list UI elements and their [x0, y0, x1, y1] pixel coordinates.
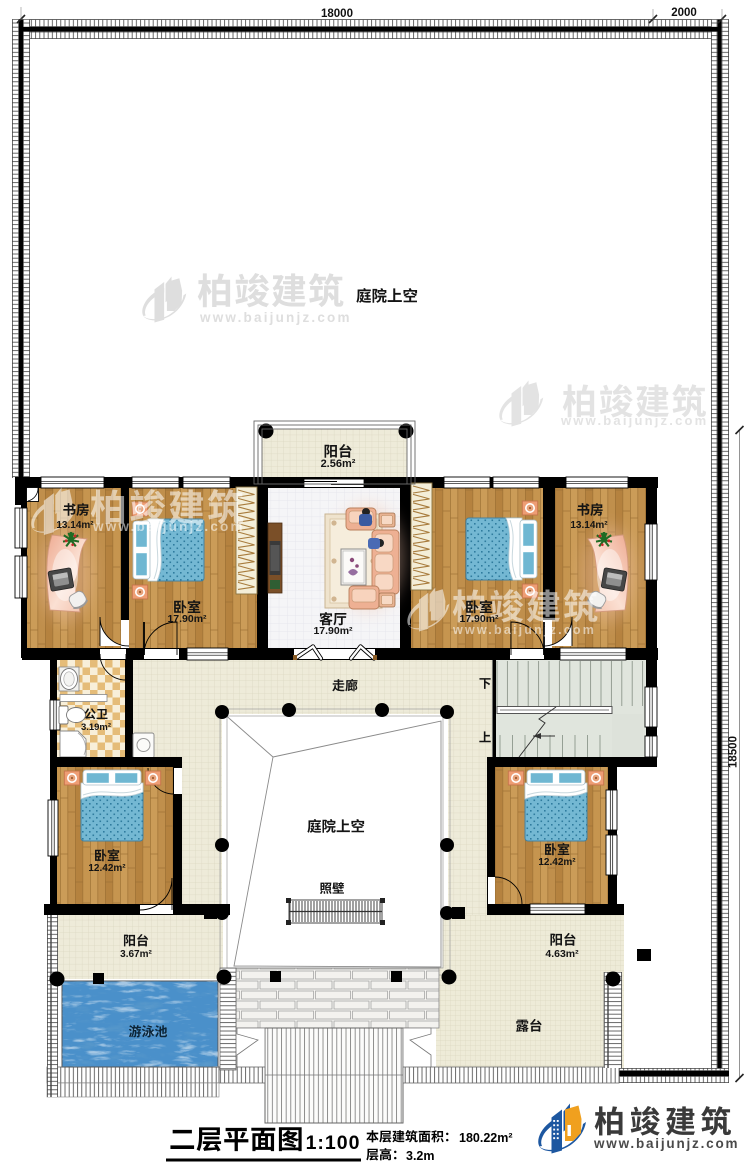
- svg-text:17.90m²: 17.90m²: [459, 613, 499, 625]
- svg-text:18500: 18500: [728, 736, 740, 768]
- svg-text:17.90m²: 17.90m²: [313, 625, 353, 637]
- svg-text:12.42m²: 12.42m²: [88, 863, 126, 874]
- svg-text:180.22m²: 180.22m²: [459, 1131, 513, 1145]
- svg-text:1:100: 1:100: [306, 1132, 361, 1154]
- svg-text:www.baijunjz.com: www.baijunjz.com: [560, 413, 708, 428]
- svg-text:17.90m²: 17.90m²: [167, 613, 207, 625]
- svg-text:13.14m²: 13.14m²: [56, 520, 94, 531]
- svg-text:4.63m²: 4.63m²: [545, 948, 579, 960]
- svg-text:www.baijunjz.com: www.baijunjz.com: [593, 1136, 739, 1151]
- svg-text:2.56m²: 2.56m²: [321, 458, 356, 470]
- svg-text:2000: 2000: [671, 7, 697, 19]
- svg-text:3.2m: 3.2m: [406, 1149, 435, 1163]
- svg-text:13.14m²: 13.14m²: [570, 520, 608, 531]
- svg-text:www.baijunjz.com: www.baijunjz.com: [199, 310, 352, 325]
- svg-text:www.baijunjz.com: www.baijunjz.com: [92, 519, 245, 534]
- svg-text:www.baijunjz.com: www.baijunjz.com: [452, 623, 596, 637]
- svg-text:3.67m²: 3.67m²: [120, 949, 152, 960]
- svg-text:18000: 18000: [321, 8, 353, 20]
- svg-text:12.42m²: 12.42m²: [538, 857, 576, 868]
- svg-text:3.19m²: 3.19m²: [81, 722, 111, 733]
